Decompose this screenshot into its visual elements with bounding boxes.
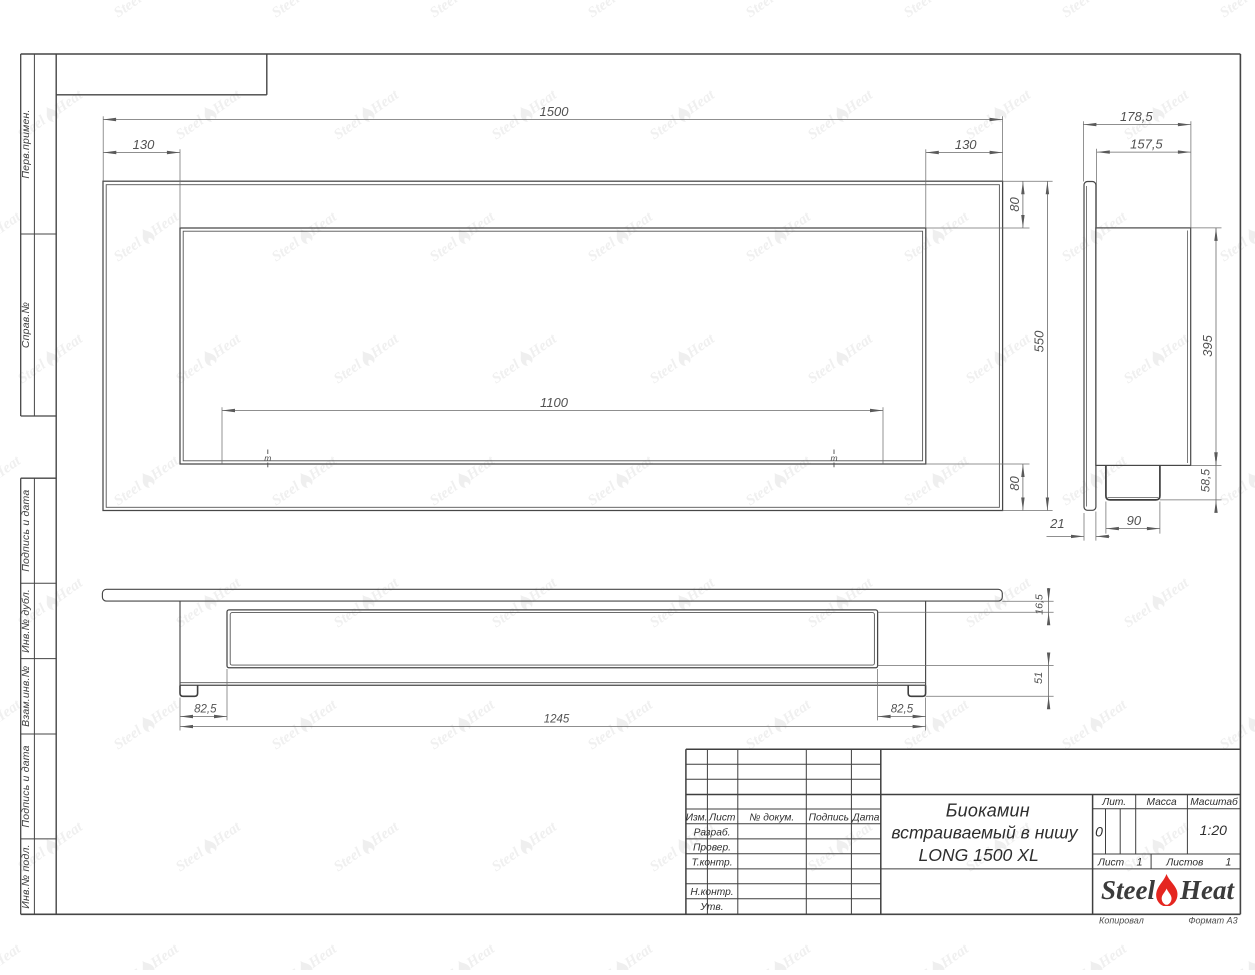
svg-text:Изм.: Изм. <box>686 812 708 823</box>
svg-text:Лист: Лист <box>1097 858 1125 869</box>
svg-text:Steel: Steel <box>1101 875 1155 905</box>
svg-text:0: 0 <box>1095 824 1103 840</box>
svg-text:Масштаб: Масштаб <box>1190 796 1239 808</box>
svg-text:395: 395 <box>1200 334 1215 356</box>
svg-text:m: m <box>264 453 271 463</box>
svg-text:Лит.: Лит. <box>1101 797 1126 808</box>
svg-text:Heat: Heat <box>1179 875 1235 905</box>
svg-text:Взам.инв.№: Взам.инв.№ <box>20 666 32 727</box>
svg-text:178,5: 178,5 <box>1120 109 1153 124</box>
svg-text:Биокамин: Биокамин <box>946 801 1030 821</box>
svg-text:Провер.: Провер. <box>693 842 731 853</box>
svg-text:LONG 1500 XL: LONG 1500 XL <box>918 845 1038 865</box>
svg-text:80: 80 <box>1007 476 1022 491</box>
svg-text:Перв.примен.: Перв.примен. <box>20 109 32 178</box>
svg-text:1100: 1100 <box>540 395 569 410</box>
svg-text:Подпись и дата: Подпись и дата <box>20 490 32 572</box>
svg-text:Утв.: Утв. <box>699 902 723 913</box>
svg-text:51: 51 <box>1033 672 1045 684</box>
svg-text:Инв.№ дубл.: Инв.№ дубл. <box>20 589 32 653</box>
svg-text:Подпись и дата: Подпись и дата <box>20 745 32 827</box>
svg-text:Дата: Дата <box>852 812 880 823</box>
svg-text:1245: 1245 <box>544 714 570 726</box>
svg-text:Масса: Масса <box>1147 797 1177 808</box>
svg-text:82,5: 82,5 <box>194 704 217 716</box>
svg-text:встраиваемый в нишу: встраиваемый в нишу <box>891 823 1078 843</box>
svg-text:82,5: 82,5 <box>891 704 914 716</box>
svg-text:Т.контр.: Т.контр. <box>691 857 732 868</box>
svg-text:1500: 1500 <box>540 104 570 119</box>
svg-text:58,5: 58,5 <box>1198 469 1212 493</box>
svg-text:16,5: 16,5 <box>1034 594 1046 615</box>
svg-text:№ докум.: № докум. <box>749 812 794 823</box>
svg-text:1: 1 <box>1225 857 1231 869</box>
svg-text:157,5: 157,5 <box>1130 136 1163 151</box>
svg-text:Листов: Листов <box>1165 858 1204 869</box>
svg-text:550: 550 <box>1032 330 1047 352</box>
svg-text:Справ.№: Справ.№ <box>20 302 32 348</box>
svg-text:1:20: 1:20 <box>1200 822 1227 838</box>
svg-text:130: 130 <box>955 137 977 152</box>
svg-text:Копировал: Копировал <box>1099 915 1144 925</box>
svg-text:1: 1 <box>1136 857 1142 869</box>
svg-text:m: m <box>830 453 837 463</box>
svg-text:Подпись: Подпись <box>809 812 849 823</box>
svg-text:Н.контр.: Н.контр. <box>690 887 733 898</box>
svg-text:Формат А3: Формат А3 <box>1188 915 1237 925</box>
svg-text:Лист: Лист <box>708 812 736 823</box>
svg-text:21: 21 <box>1049 516 1064 531</box>
svg-text:90: 90 <box>1127 513 1142 528</box>
svg-text:130: 130 <box>133 137 155 152</box>
svg-text:Разраб.: Разраб. <box>694 826 731 838</box>
svg-text:80: 80 <box>1007 197 1022 212</box>
svg-text:Инв.№ подл.: Инв.№ подл. <box>20 844 32 908</box>
